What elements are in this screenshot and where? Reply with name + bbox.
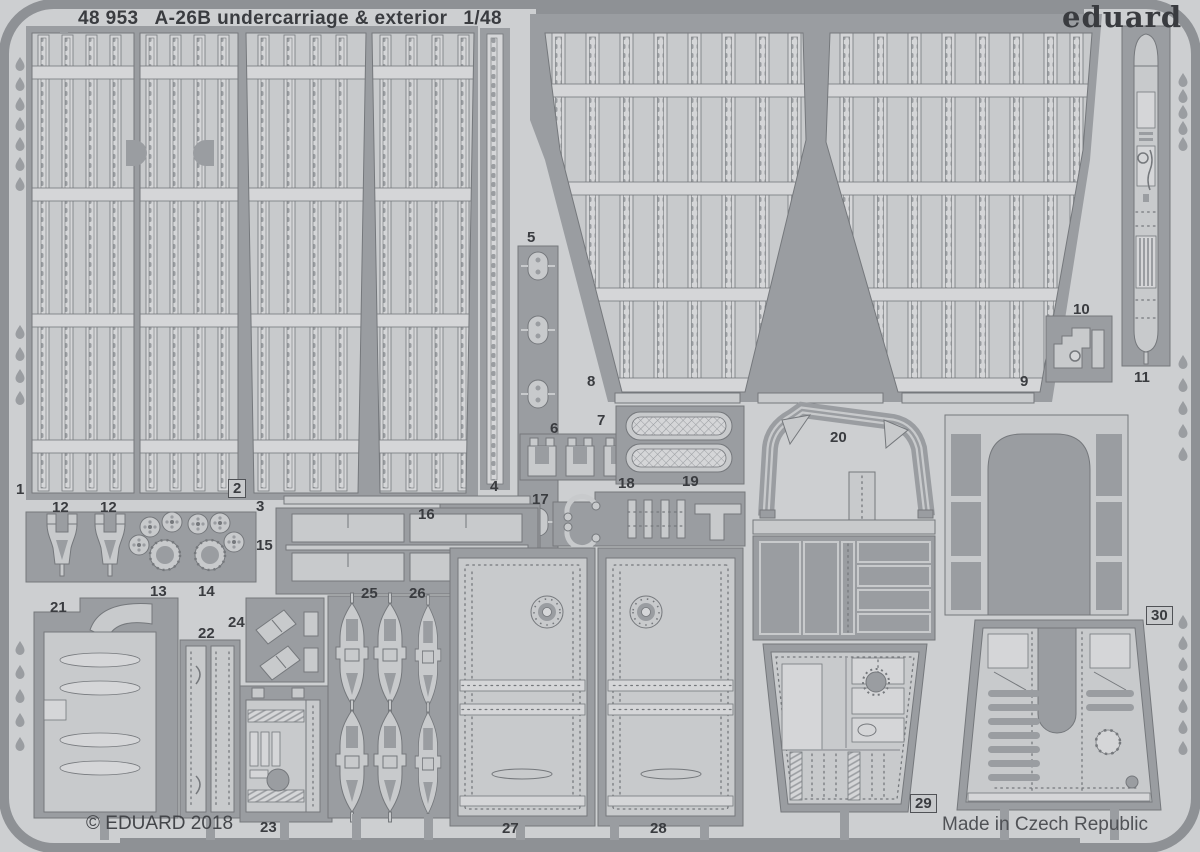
part-label-11: 11: [1134, 370, 1150, 385]
part-21-panel: [34, 598, 178, 818]
part-label-15: 15: [256, 538, 273, 553]
part-label-2: 2: [228, 479, 246, 498]
part-11-strip: [1122, 26, 1170, 366]
photo-etch-sheet: 48 953A-26B undercarriage & exterior1/48…: [0, 0, 1200, 852]
rib-panels-1-2: [26, 26, 478, 500]
part-label-17: 17: [532, 492, 549, 507]
nacelle-arch-panel: [945, 415, 1128, 615]
part-label-4: 4: [490, 479, 498, 494]
part-label-9: 9: [1020, 374, 1028, 389]
part-label-13: 13: [150, 584, 167, 599]
part-label-12: 12: [100, 500, 117, 515]
part-label-22: 22: [198, 626, 215, 641]
part-10-bracket: [1046, 316, 1112, 382]
part-23-panel: [240, 686, 332, 822]
scale: 1/48: [463, 8, 502, 29]
doors-27-28: [450, 548, 743, 826]
part-label-25: 25: [361, 586, 378, 601]
part-label-7: 7: [597, 413, 605, 428]
catalog-number: 48 953: [78, 8, 139, 29]
part-label-14: 14: [198, 584, 215, 599]
part-30-panel: [957, 620, 1161, 810]
part-20-arch: [760, 410, 933, 518]
part-label-8: 8: [587, 374, 595, 389]
part-label-12: 12: [52, 500, 69, 515]
rib-panels-8-9: [530, 14, 1102, 403]
part-label-29: 29: [910, 794, 937, 813]
sheet-name: A-26B undercarriage & exterior: [155, 8, 448, 29]
part-label-23: 23: [260, 820, 277, 835]
made-in-text: Made in Czech Republic: [942, 815, 1148, 834]
part-label-30: 30: [1146, 606, 1173, 625]
part-label-20: 20: [830, 430, 847, 445]
part-label-16: 16: [418, 507, 435, 522]
part-24-chevrons: [246, 598, 324, 682]
part-label-5: 5: [527, 230, 535, 245]
parts-25-26-links: [328, 593, 450, 824]
brand-logo: eduard: [1062, 3, 1182, 32]
part-label-10: 10: [1073, 302, 1090, 317]
part-label-26: 26: [409, 586, 426, 601]
part-label-6: 6: [550, 421, 558, 436]
parts-17-18-19-plate: [553, 492, 745, 548]
part-29-panel: [763, 644, 927, 812]
part-label-21: 21: [50, 600, 67, 615]
part-label-19: 19: [682, 474, 699, 489]
part-label-27: 27: [502, 821, 519, 836]
part-7-grilles: [616, 406, 744, 484]
sheet-title: 48 953A-26B undercarriage & exterior1/48: [78, 9, 502, 28]
part-label-24: 24: [228, 615, 245, 630]
part-label-28: 28: [650, 821, 667, 836]
part-label-18: 18: [618, 476, 635, 491]
slotted-block: [753, 472, 935, 640]
part-4-strip: [480, 28, 510, 490]
copyright-text: © EDUARD 2018: [86, 814, 233, 833]
part-label-1: 1: [16, 482, 24, 497]
parts-12-13-14-plate: [26, 512, 256, 582]
part-22-strips: [180, 640, 240, 818]
part-label-3: 3: [256, 499, 264, 514]
